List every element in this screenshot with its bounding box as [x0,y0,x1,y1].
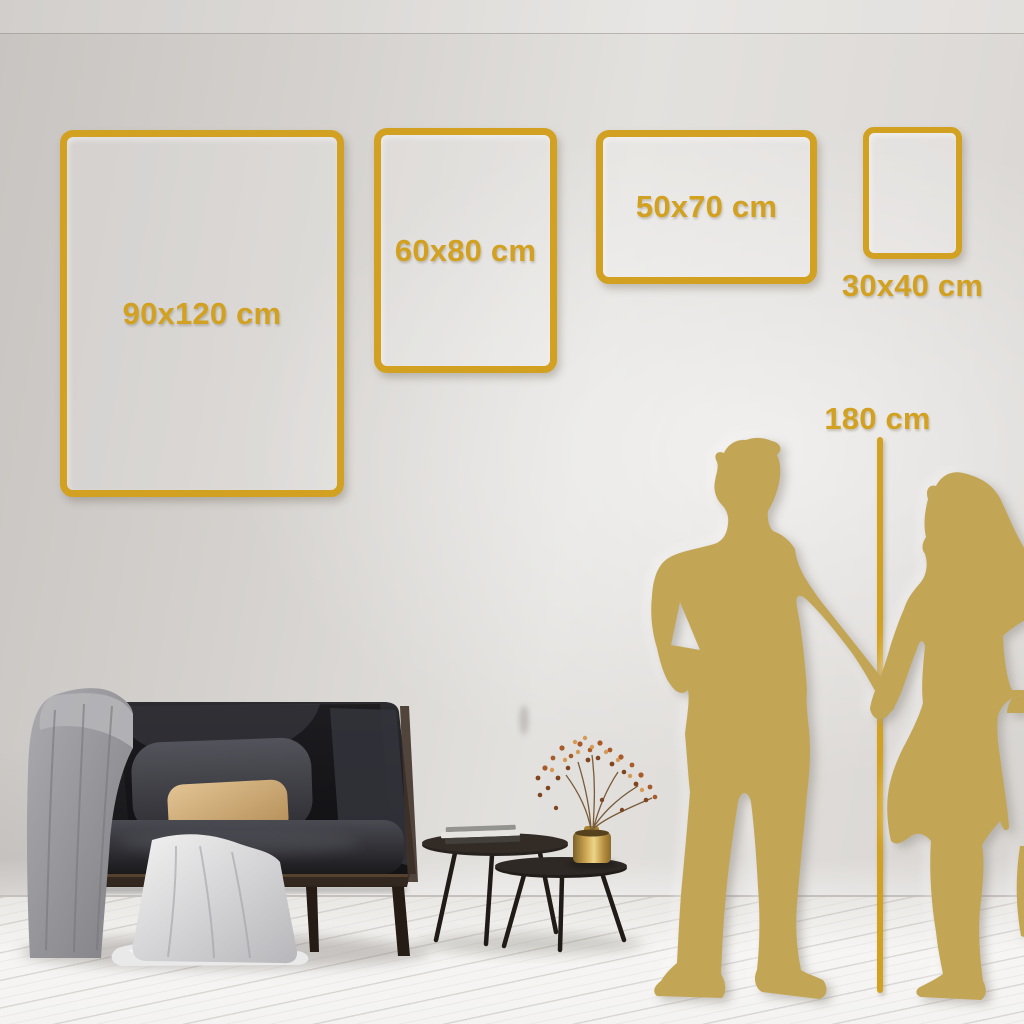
woman-silhouette [870,472,1024,1000]
woman-right-leg-edge [1017,846,1024,938]
couple-silhouette [0,0,1024,1024]
poster-size-guide-image: 90x120 cm 60x80 cm 50x70 cm 30x40 cm 180… [0,0,1024,1024]
man-silhouette [651,438,895,999]
